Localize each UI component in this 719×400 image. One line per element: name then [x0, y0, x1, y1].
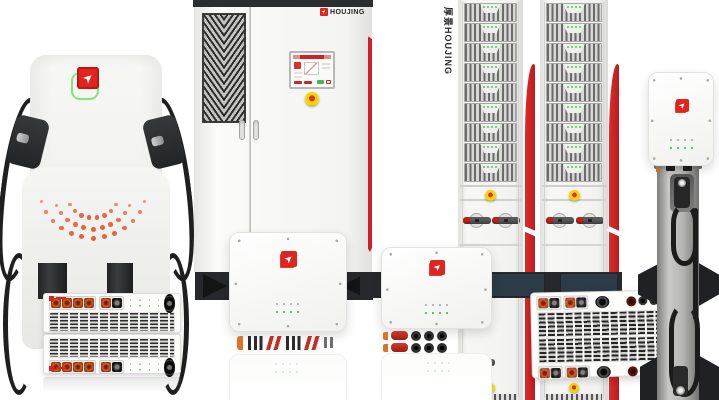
module-notch — [563, 24, 585, 33]
round-connector-darkred — [626, 296, 636, 306]
module-led — [491, 86, 493, 88]
module-led — [575, 46, 577, 48]
module-notch — [563, 64, 585, 73]
module-notch — [480, 164, 500, 173]
power-module — [546, 43, 602, 62]
connector-orange — [84, 298, 94, 308]
module-led — [575, 26, 577, 28]
power-module — [464, 23, 517, 42]
module-led — [491, 126, 493, 128]
display-button — [304, 81, 312, 84]
module-led — [571, 126, 573, 128]
ventilation-grille — [49, 312, 175, 332]
charger-led-dot — [68, 203, 71, 206]
charger-led-dot — [123, 211, 127, 215]
connector-group — [536, 295, 561, 310]
module-led — [483, 146, 485, 148]
status-led-pair — [148, 298, 150, 308]
module-led — [571, 46, 573, 48]
connector-group — [538, 365, 563, 380]
power-module — [546, 23, 602, 42]
emergency-stop-button — [569, 190, 580, 201]
estop-panel — [460, 185, 521, 201]
module-notch — [480, 24, 500, 33]
charger-led-dot — [114, 203, 117, 206]
module-led — [491, 46, 493, 48]
charger-led-dot — [102, 234, 107, 239]
power-module — [464, 83, 517, 102]
mini-brand-logo — [49, 366, 66, 371]
terminal-round-connector — [424, 343, 434, 353]
module-led — [491, 146, 493, 148]
wallbox-charger-small — [381, 247, 492, 329]
brand-logo-text: HOUJING — [330, 9, 365, 16]
terminal-row — [383, 342, 467, 353]
charger-led-dot — [79, 213, 84, 218]
module-notch — [563, 104, 585, 113]
module-led — [487, 46, 489, 48]
module-led — [579, 46, 581, 48]
grille-left-half — [204, 15, 224, 121]
connector-black — [549, 297, 559, 307]
hmi-display — [289, 51, 335, 89]
module-led — [483, 46, 485, 48]
charger-led-dot — [65, 218, 69, 222]
module-led — [483, 86, 485, 88]
power-module — [546, 103, 602, 122]
module-led — [495, 106, 497, 108]
charger-led-dot — [55, 204, 58, 207]
logo-red-square — [77, 67, 99, 89]
connector-group — [563, 295, 588, 310]
status-led-grid — [427, 362, 453, 372]
brand-logo-icon — [320, 8, 328, 16]
module-led — [567, 86, 569, 88]
module-led — [487, 26, 489, 28]
module-led — [487, 66, 489, 68]
display-outline-button — [326, 80, 331, 84]
connector-orange — [565, 297, 575, 307]
charger-led-dot — [131, 219, 135, 223]
module-led — [575, 146, 577, 148]
charger-led-dot — [73, 209, 77, 213]
emergency-stop-button — [569, 383, 579, 393]
module-led — [483, 6, 485, 8]
module-led — [571, 146, 573, 148]
module-led — [495, 66, 497, 68]
status-led-pair — [129, 362, 131, 372]
module-led — [579, 106, 581, 108]
charger-led-dot — [138, 210, 142, 214]
module-led — [567, 46, 569, 48]
terminal-round-connector — [424, 331, 434, 341]
panel-seam — [460, 244, 521, 246]
product-collage: HOUJING — [0, 0, 719, 400]
charger-led-dot — [122, 226, 126, 230]
display-text-line — [294, 72, 302, 74]
charger-led-dot — [91, 236, 96, 241]
tower-module-stack — [464, 3, 517, 183]
status-led-pair — [148, 362, 150, 372]
adjustment-knob — [595, 295, 609, 307]
ventilation-grille — [538, 310, 670, 338]
module-led — [579, 126, 581, 128]
module-led — [579, 66, 581, 68]
wallbox-charger-large — [229, 232, 347, 332]
connector-orange — [540, 368, 550, 378]
terminal-round-connector — [411, 331, 421, 341]
brand-logo-icon — [281, 251, 297, 267]
module-led — [575, 166, 577, 168]
status-led-pair — [138, 362, 140, 372]
power-module — [546, 83, 602, 102]
module-led — [483, 126, 485, 128]
connector-orange — [101, 362, 111, 372]
module-led — [571, 86, 573, 88]
module-led — [575, 126, 577, 128]
module-notch — [480, 44, 500, 53]
module-notch — [480, 84, 500, 93]
module-led — [483, 106, 485, 108]
base-triangle — [203, 274, 227, 298]
charging-module-pair — [43, 293, 181, 375]
module-led — [567, 6, 569, 8]
charger-led-dot — [100, 225, 105, 230]
charger-led-dot — [109, 209, 113, 213]
module-led — [567, 146, 569, 148]
charger-led-dot — [44, 210, 48, 214]
rotary-breaker — [463, 210, 491, 232]
charger-led-dot — [116, 218, 120, 222]
connector-black — [578, 367, 588, 377]
status-led-pair — [157, 298, 159, 308]
ventilation-grille — [49, 338, 175, 358]
cabinet-top-strip — [193, 0, 373, 7]
module-reflection — [43, 377, 181, 393]
module-led — [483, 66, 485, 68]
display-chart — [304, 62, 319, 75]
connector-group — [99, 360, 124, 374]
module-notch — [480, 64, 500, 73]
module-notch — [563, 4, 585, 13]
round-connector-darkred — [628, 366, 638, 376]
module-led — [495, 166, 497, 168]
power-module — [464, 63, 517, 82]
terminal-round-connector — [437, 343, 447, 353]
module-notch — [563, 124, 585, 133]
module-led — [575, 6, 577, 8]
display-header — [293, 55, 331, 59]
power-module — [464, 143, 517, 162]
power-module — [464, 103, 517, 122]
module-led — [495, 6, 497, 8]
connector-orange — [538, 298, 548, 308]
charger-led-dot — [102, 213, 107, 218]
status-led-grid — [425, 304, 451, 314]
module-led — [575, 86, 577, 88]
module-led — [575, 66, 577, 68]
module-led — [495, 26, 497, 28]
module-tower-1 — [458, 0, 523, 400]
emergency-stop-button — [485, 190, 496, 201]
power-module — [464, 123, 517, 142]
display-text-line — [294, 76, 302, 78]
connector-orange — [73, 362, 83, 372]
bottom-grille — [546, 394, 602, 400]
fan-icon — [164, 294, 175, 313]
module-notch — [563, 144, 585, 153]
breaker-lever — [492, 217, 520, 224]
charger-led-dot — [51, 219, 55, 223]
tower-module-stack — [546, 3, 602, 183]
module-led — [579, 26, 581, 28]
status-led-grid — [276, 303, 302, 313]
breaker-row — [458, 210, 523, 236]
brand-logo-icon — [676, 99, 689, 112]
terminal-red-busbars — [266, 336, 283, 350]
brand-logo-icon — [430, 260, 445, 275]
module-led — [495, 126, 497, 128]
module-notch — [480, 104, 500, 113]
terminal-gray-bars — [324, 337, 333, 348]
module-led — [571, 166, 573, 168]
breaker-lever — [576, 217, 604, 224]
module-led — [495, 46, 497, 48]
module-notch — [480, 144, 500, 153]
mini-brand-logo — [49, 296, 66, 301]
tower-vertical-label-text: 厚景HOUJING — [442, 7, 455, 75]
terminal-orange — [237, 336, 243, 350]
connector-group — [565, 365, 590, 380]
module-led — [483, 26, 485, 28]
connector-black — [551, 367, 561, 377]
module-led — [567, 106, 569, 108]
red-accent-stripe — [368, 36, 372, 252]
terminal-round-connector — [437, 331, 447, 341]
power-module — [464, 43, 517, 62]
module-led — [487, 6, 489, 8]
connector-orange — [84, 362, 94, 372]
emergency-stop-button — [305, 92, 319, 106]
terminal-black-bars — [286, 336, 301, 350]
module-led — [491, 6, 493, 8]
connector-group — [99, 296, 124, 310]
display-logo — [294, 62, 301, 69]
module-notch — [480, 4, 500, 13]
power-module — [464, 3, 517, 22]
module-led — [579, 6, 581, 8]
charger-led-dot — [69, 231, 74, 236]
module-led — [571, 26, 573, 28]
module-led — [567, 166, 569, 168]
connector-black — [112, 362, 122, 372]
module-led — [575, 106, 577, 108]
wallbox-reflection — [229, 354, 347, 400]
module-led — [579, 146, 581, 148]
power-module — [546, 123, 602, 142]
module-led — [567, 26, 569, 28]
connector-orange — [567, 367, 577, 377]
terminal-row — [383, 330, 467, 341]
module-led — [567, 66, 569, 68]
terminal-red-busbars — [304, 336, 321, 350]
power-module — [546, 63, 602, 82]
connector-row — [49, 296, 175, 310]
module-notch — [563, 44, 585, 53]
charger-led-dot — [59, 226, 63, 230]
status-led-grid — [275, 363, 301, 373]
terminal-red-connector — [391, 331, 408, 340]
breaker-lever — [546, 217, 574, 224]
charger-led-dot — [128, 204, 131, 207]
power-module — [546, 3, 602, 22]
charging-module-front — [43, 293, 181, 333]
terminal-orange — [383, 344, 388, 352]
rotary-breaker — [492, 210, 520, 232]
status-led-pair — [157, 362, 159, 372]
module-led — [487, 106, 489, 108]
copper-terminal — [656, 166, 660, 172]
charger-led-dot — [91, 227, 96, 232]
module-led — [491, 26, 493, 28]
power-module — [464, 163, 517, 182]
connector-orange — [73, 298, 83, 308]
wallbox-terminal-strip — [237, 334, 345, 351]
module-led — [495, 146, 497, 148]
status-led-grid — [670, 139, 696, 149]
status-led-pair — [138, 298, 140, 308]
door-handle — [253, 120, 259, 140]
wallbox-reflection — [381, 353, 492, 400]
display-green-button — [317, 80, 324, 84]
wallbox-terminal-strip — [383, 330, 467, 354]
module-led — [495, 86, 497, 88]
display-button — [294, 81, 302, 84]
adjustment-knob — [597, 365, 611, 377]
module-led — [491, 106, 493, 108]
terminal-round-connector — [411, 343, 421, 353]
power-module — [546, 163, 602, 182]
wallbox-charger-right — [648, 72, 714, 166]
display-text-line — [322, 63, 330, 65]
charging-gun — [673, 366, 688, 396]
connector-orange — [101, 298, 111, 308]
charger-led-dot — [73, 222, 78, 227]
power-module — [546, 143, 602, 162]
connector-black — [112, 298, 122, 308]
connector-black — [576, 297, 586, 307]
terminal-black-bars — [248, 336, 263, 350]
module-led — [487, 146, 489, 148]
module-led — [571, 6, 573, 8]
cabinet-vent-grille — [202, 13, 246, 123]
tower-vertical-label: 厚景HOUJING — [444, 5, 457, 113]
rotary-breaker — [576, 210, 604, 232]
connector-row — [49, 360, 175, 374]
dark-wing-bracket — [697, 262, 719, 307]
module-led — [483, 166, 485, 168]
module-led — [571, 106, 573, 108]
module-led — [579, 86, 581, 88]
brand-logo-icon — [71, 67, 105, 101]
charger-led-dot — [112, 231, 117, 236]
module-led — [487, 126, 489, 128]
ventilation-grille — [538, 336, 670, 364]
breaker-lever — [463, 217, 491, 224]
module-led — [491, 166, 493, 168]
module-led — [491, 66, 493, 68]
charging-module-rear — [43, 334, 181, 374]
door-handle — [239, 120, 245, 140]
grille-right-half — [224, 15, 244, 121]
brand-logo: HOUJING — [320, 8, 365, 16]
module-notch — [563, 84, 585, 93]
module-notch — [563, 164, 585, 173]
module-led — [571, 66, 573, 68]
panel-seam — [542, 244, 606, 246]
module-led — [567, 126, 569, 128]
estop-panel — [542, 185, 606, 201]
terminal-orange — [383, 332, 388, 340]
breaker-row — [540, 210, 608, 236]
module-led — [487, 86, 489, 88]
rotary-breaker — [546, 210, 574, 232]
fan-icon — [164, 358, 175, 377]
status-led-pair — [129, 298, 131, 308]
terminal-red-connector — [391, 343, 408, 352]
module-led — [487, 166, 489, 168]
charging-cable — [693, 208, 698, 320]
display-text-line — [322, 67, 330, 69]
module-notch — [480, 124, 500, 133]
module-led — [579, 166, 581, 168]
